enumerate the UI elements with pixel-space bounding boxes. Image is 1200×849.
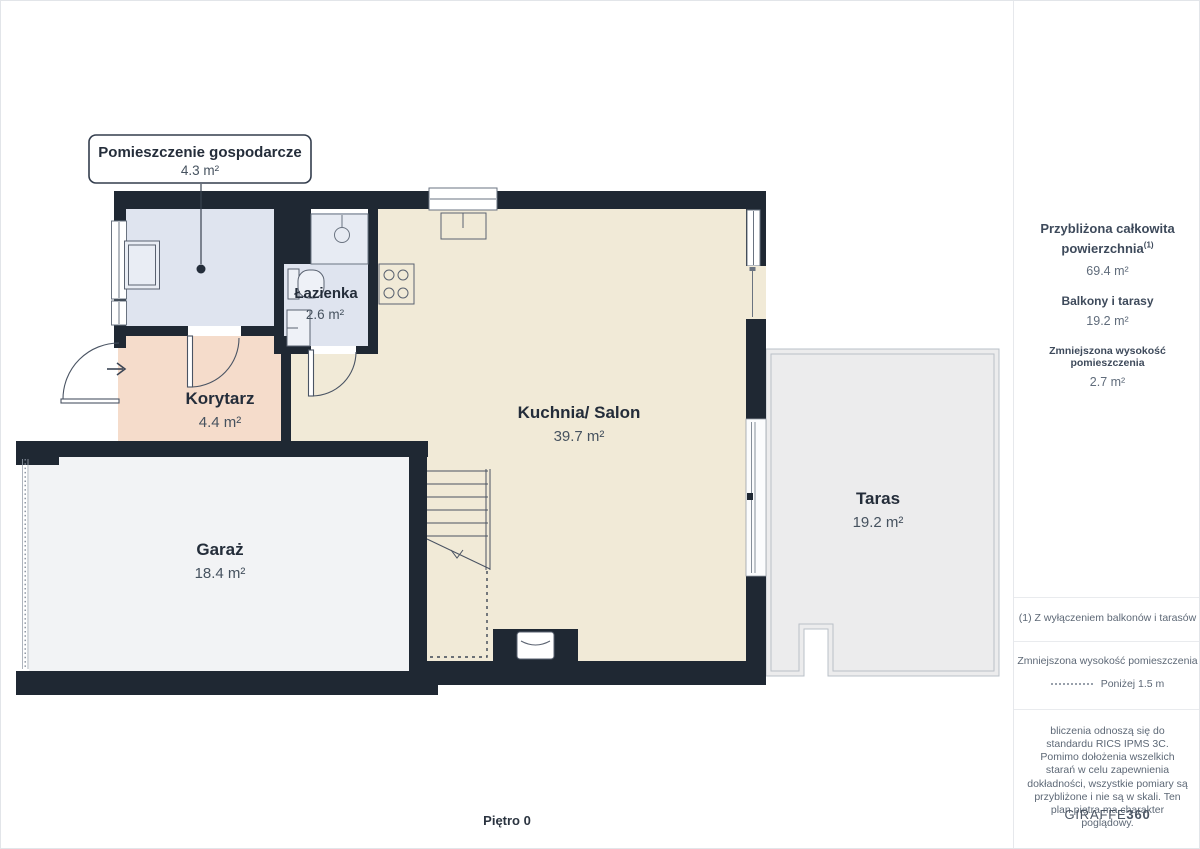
sidebar: Przybliżona całkowita powierzchnia(1) 69…	[1013, 1, 1200, 849]
room-label-taras: Taras	[856, 489, 900, 508]
balconies-value: 19.2 m²	[1014, 314, 1200, 328]
east-window-icon	[747, 210, 760, 266]
summary-panel: Przybliżona całkowita powierzchnia(1) 69…	[1014, 219, 1200, 389]
logo-suffix: 360	[1126, 807, 1150, 822]
sidebar-divider	[1014, 709, 1200, 710]
room-label-korytarz: Korytarz	[186, 389, 255, 408]
terrace-sliding-door-icon	[746, 419, 766, 576]
logo-text: GIRAFFE	[1064, 807, 1126, 822]
left-small-window-icon	[112, 301, 127, 325]
callout-title: Pomieszczenie gospodarcze	[98, 144, 301, 161]
dashed-line-icon	[1051, 683, 1093, 685]
total-area-value: 69.4 m²	[1014, 264, 1200, 278]
floor-plan-page: Pomieszczenie gospodarcze 4.3 m² Łazienk…	[0, 0, 1200, 849]
legend-row: Poniżej 1.5 m	[1014, 678, 1200, 690]
garage-door-icon	[23, 459, 29, 669]
kitchen-top-window-icon	[429, 188, 497, 210]
east-pocket-door-icon	[746, 266, 766, 319]
total-area-label-text: Przybliżona całkowita powierzchnia	[1040, 221, 1174, 256]
floor-plan: Pomieszczenie gospodarcze 4.3 m² Łazienk…	[1, 1, 1013, 849]
room-area-kuchnia: 39.7 m²	[554, 428, 605, 445]
room-label-kuchnia: Kuchnia/ Salon	[518, 403, 641, 422]
room-label-garaz: Garaż	[196, 540, 243, 559]
entry-door-icon	[61, 343, 119, 403]
room-area-korytarz: 4.4 m²	[199, 414, 242, 431]
room-taras	[766, 349, 999, 676]
shower-icon	[311, 214, 368, 264]
sidebar-divider	[1014, 597, 1200, 598]
room-area-lazienka: 2.6 m²	[306, 307, 345, 322]
room-area-garaz: 18.4 m²	[195, 565, 246, 582]
room-label-lazienka: Łazienka	[294, 285, 358, 302]
callout-leader-dot	[197, 265, 206, 274]
fireplace-icon	[517, 632, 554, 659]
footnote-text: (1) Z wyłączeniem balkonów i tarasów	[1014, 612, 1200, 624]
boiler-icon	[125, 241, 160, 289]
giraffe360-logo: GIRAFFE360	[1014, 807, 1200, 822]
reduced-height-value: 2.7 m²	[1014, 375, 1200, 389]
garage-floor	[29, 457, 409, 671]
legend-title: Zmniejszona wysokość pomieszczenia	[1014, 655, 1200, 667]
total-area-label: Przybliżona całkowita powierzchnia(1)	[1014, 219, 1200, 258]
total-area-footnote-marker: (1)	[1144, 240, 1154, 249]
balconies-label: Balkony i tarasy	[1014, 294, 1200, 308]
sidebar-divider	[1014, 641, 1200, 642]
reduced-height-label: Zmniejszona wysokość pomieszczenia	[1014, 345, 1200, 369]
terrace-floor	[766, 349, 999, 676]
callout-area: 4.3 m²	[181, 163, 220, 178]
floor-label: Piętro 0	[1, 813, 1013, 828]
legend-item-text: Poniżej 1.5 m	[1101, 678, 1165, 690]
room-area-taras: 19.2 m²	[853, 514, 904, 531]
